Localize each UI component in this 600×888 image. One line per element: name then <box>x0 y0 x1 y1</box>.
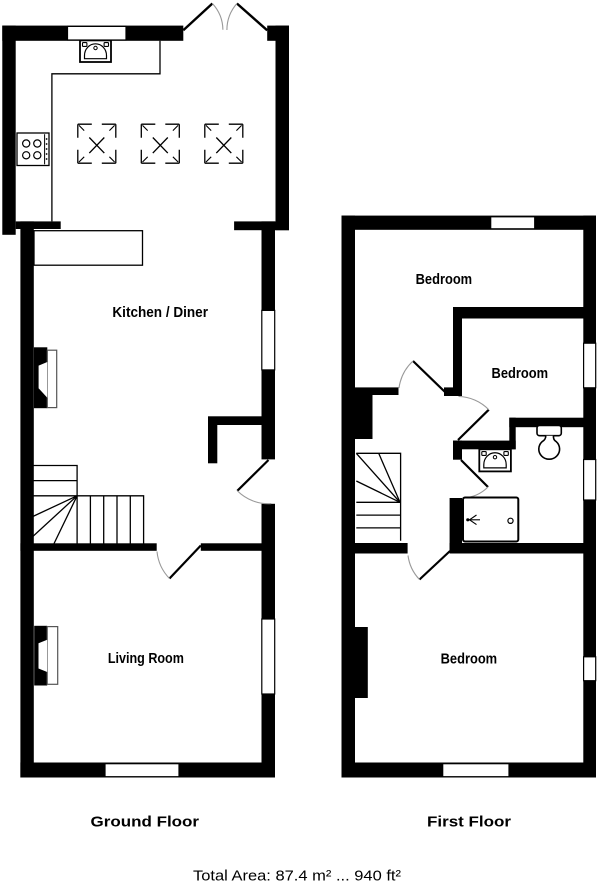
svg-text:Bedroom: Bedroom <box>441 652 498 668</box>
svg-text:First Floor: First Floor <box>427 814 511 831</box>
svg-text:Ground Floor: Ground Floor <box>91 814 200 831</box>
svg-text:Living Room: Living Room <box>108 651 184 667</box>
svg-text:Bedroom: Bedroom <box>492 366 549 382</box>
svg-text:Total Area: 87.4 m² ... 940 ft: Total Area: 87.4 m² ... 940 ft² <box>193 868 401 885</box>
svg-text:Kitchen / Diner: Kitchen / Diner <box>112 305 208 321</box>
svg-text:Bedroom: Bedroom <box>416 272 473 288</box>
